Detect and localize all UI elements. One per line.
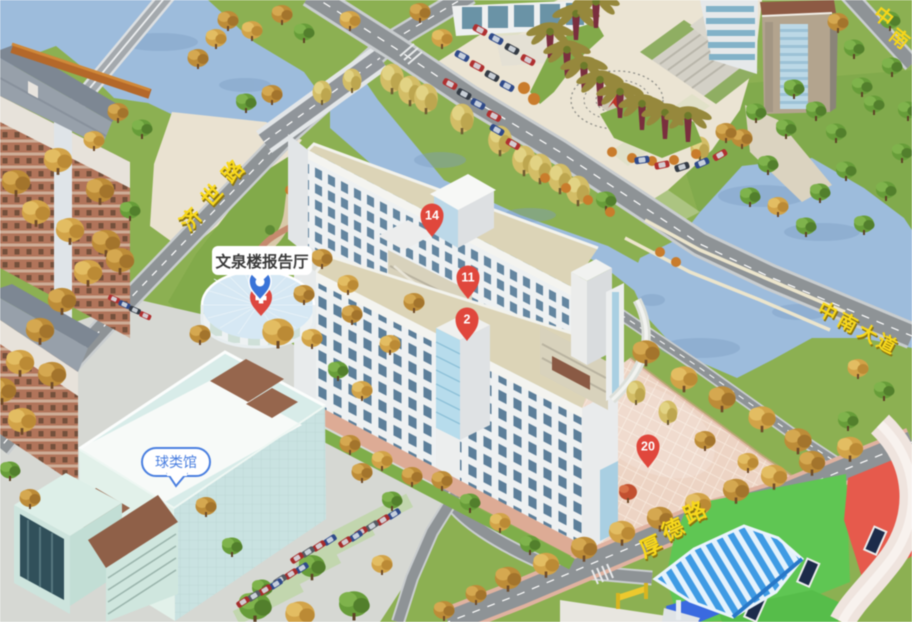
svg-text:球类馆: 球类馆 — [155, 454, 197, 470]
svg-text:11: 11 — [461, 271, 474, 285]
svg-text:14: 14 — [425, 209, 439, 223]
svg-text:文泉楼报告厅: 文泉楼报告厅 — [215, 252, 309, 271]
svg-text:2: 2 — [464, 313, 471, 327]
svg-text:20: 20 — [641, 440, 655, 454]
